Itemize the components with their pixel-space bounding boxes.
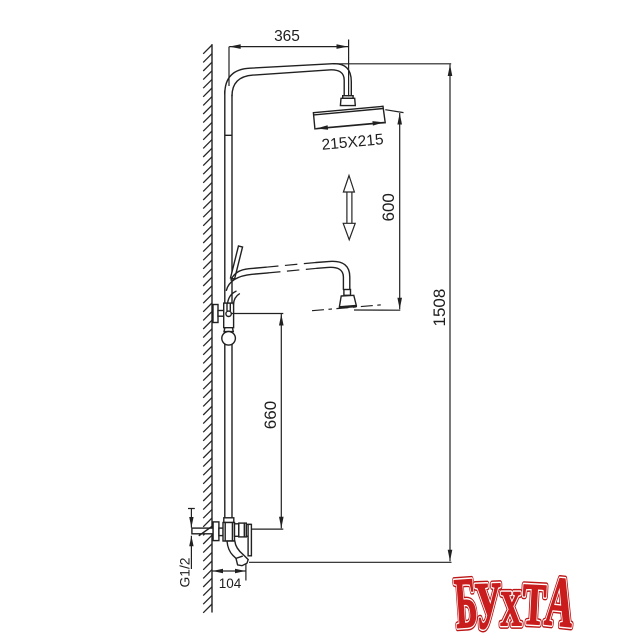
- svg-text:1508: 1508: [430, 289, 449, 327]
- svg-text:660: 660: [261, 401, 280, 429]
- svg-text:600: 600: [379, 193, 398, 221]
- svg-text:365: 365: [274, 28, 300, 45]
- svg-text:104: 104: [219, 576, 242, 591]
- svg-text:G1/2: G1/2: [178, 558, 193, 588]
